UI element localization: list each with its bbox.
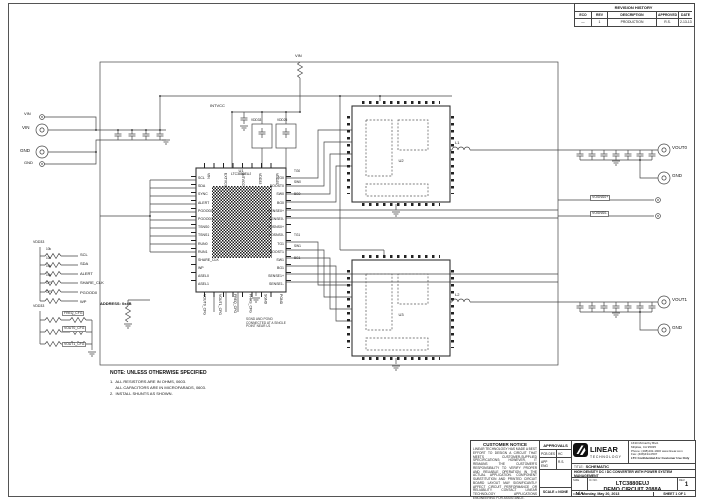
date-value: Monday, May 20, 2013 — [582, 492, 653, 496]
pullup-value-labels: 10k10k10k10kOPTOPT — [46, 248, 53, 294]
vout1-jack-label: VOUT1 — [672, 298, 687, 303]
pullup-rail-label: VDD33 — [33, 241, 44, 245]
u1-pin-label: WP — [198, 267, 228, 271]
u1-pin-label: VOSNS0- — [256, 234, 284, 238]
net-label: SDA — [80, 262, 104, 266]
resistor-value: 10k — [46, 265, 53, 268]
net-label: ALERT — [80, 272, 104, 276]
rev-cell: REV. 1 — [677, 478, 695, 490]
net-label: SHARE_CLK — [80, 281, 104, 285]
u1-pin-label: SHARE_CLK — [198, 259, 228, 263]
u1-pin-label: PHAS_CFG — [248, 294, 252, 316]
u1-pin-label: SENSE0+ — [256, 210, 284, 214]
u2-refdes: U2 — [352, 158, 450, 163]
logo-word-linear: LINEAR — [590, 445, 619, 454]
pullup-net-labels: SCLSDAALERTSHARE_CLKPGOOD0WP — [80, 253, 104, 304]
revision-history-table: REVISION HISTORY ECO REV DESCRIPTION APP… — [574, 3, 695, 27]
approvals-block: APPROVALS PCB DES HC APP ENG R.S. SCALE … — [540, 440, 572, 497]
u1-pin-label: SENSE0- — [256, 218, 284, 222]
config-net-labels: FREQ_CFGVOUT0_CFGVOUT1_CFG — [62, 311, 86, 347]
rev-col-description: DESCRIPTION — [607, 11, 656, 18]
schematic-graphics — [0, 0, 702, 500]
intvcc-net-label: INTVCC — [210, 104, 225, 108]
vdd33-net-label: VDD33 — [251, 119, 261, 123]
resistor-value: OPT — [46, 282, 53, 285]
u3-bottom-pads — [362, 357, 440, 360]
title-block: LINEAR TECHNOLOGY 1630 McCarthy Blvd. Mi… — [572, 440, 696, 497]
approvals-row-label: PCB DES — [540, 450, 557, 457]
vin-top-net-label: VIN — [295, 54, 302, 58]
resistor-value: 10k — [46, 248, 53, 251]
net-label: PGOOD0 — [80, 291, 104, 295]
u1-pin-label: ASEL1 — [198, 283, 228, 287]
intvcc-wiring — [232, 62, 303, 168]
u2-bottom-pads — [362, 203, 440, 206]
scale-label: SCALE = NONE — [540, 487, 571, 496]
input-jacks — [36, 115, 48, 167]
u3-top-pads — [362, 255, 440, 258]
u1-left-pins-ticks — [191, 176, 196, 288]
drawing-subtitle: HIGH DENSITY DC / DC CONVERTER WITH POWE… — [572, 469, 695, 477]
approvals-row-value: HC — [557, 450, 564, 457]
net-label: BG0 — [294, 193, 301, 196]
u2-right-pads — [451, 116, 454, 194]
u1-left-pin-labels: SCLSDASYNCALERTPGOOD0PGOOD1TSNS0TSNS1RUN… — [198, 177, 228, 287]
resistor-value: OPT — [46, 291, 53, 294]
u1-pin-label: PGND — [278, 294, 282, 316]
u1-pin-label: PGOOD0 — [198, 210, 228, 214]
u1-pin-label: BG1 — [256, 267, 284, 271]
schematic-frame — [100, 62, 558, 365]
u1-pin-label: BOOST1 — [256, 251, 284, 255]
resistor-value: 10k — [46, 257, 53, 260]
u1-bottom-pin-labels: VOUT0_CFGVOUT1_CFGFREQ_CFGPHAS_CFGSGNDPG… — [202, 294, 282, 316]
u1-pin-label: PGOOD1 — [198, 218, 228, 222]
ch0-net-labels: TG0SW0BG0 — [294, 170, 301, 196]
u1-pin-label: VDD25 — [275, 173, 279, 185]
vin-sense-terminal-label: VIN — [24, 112, 31, 116]
u1-pin-label: SENSE1+ — [256, 275, 284, 279]
config-rail-label: VDD33 — [33, 305, 44, 309]
net-label: VOUT1_CFG — [62, 342, 86, 347]
rev-row-eco: — — [575, 18, 591, 25]
linear-technology-logo: LINEAR TECHNOLOGY — [572, 441, 628, 463]
u1-top-pin-labels: VINEXTVCCINTVCCVDD33VDD25 — [206, 173, 278, 185]
logo-word-technology: TECHNOLOGY — [590, 455, 622, 459]
net-label: VOUT0_CFG — [62, 326, 86, 331]
rev-col-rev: REV — [591, 11, 607, 18]
note-line: 2. INSTALL SHUNTS AS SHOWN. — [110, 391, 280, 397]
revision-history-title: REVISION HISTORY — [575, 4, 692, 11]
rev-row-approved: R.S. — [656, 18, 678, 25]
net-label: SW0 — [294, 181, 301, 184]
company-address: 1630 McCarthy Blvd. Milpitas, CA 95035 P… — [628, 441, 695, 463]
u1-pin-label: TSNS0 — [198, 226, 228, 230]
u1-pin-label: VOSNS0+ — [256, 226, 284, 230]
u3-left-pads — [347, 270, 350, 348]
rev-value: 1 — [678, 482, 695, 488]
vin-jack-label: VIN — [22, 126, 30, 131]
rev-col-date: DATE — [678, 11, 692, 18]
u1-pin-label: SYNC — [198, 193, 228, 197]
l2-refdes: L2 — [455, 293, 459, 297]
output0-wiring — [450, 144, 670, 218]
vosns0n-net-label: VOSNS0- — [590, 211, 609, 217]
u1-pin-label: VDD33 — [257, 173, 261, 185]
u3-right-pads — [451, 270, 454, 348]
title-label: TITLE: — [572, 465, 586, 469]
u1-pin-label: EXTVCC — [223, 173, 227, 185]
l1-refdes: L1 — [455, 141, 459, 145]
size-label: SIZE — [572, 478, 587, 482]
u2-top-pads — [362, 101, 440, 104]
u1-pin-label: RUN1 — [198, 251, 228, 255]
resistor-value: 10k — [46, 274, 53, 277]
u1-pin-label: VOUT0_CFG — [202, 294, 206, 316]
rev-row-date: 2-13-13 — [678, 18, 692, 25]
u1-gnd-note: SGND AND PGND CONNECTED AT A SINGLE POIN… — [246, 318, 288, 329]
u2-left-pads — [347, 116, 350, 194]
u1-pin-label: INTVCC — [240, 173, 244, 185]
u1-pin-label: TSNS1 — [198, 234, 228, 238]
gnd-jack-label: GND — [20, 149, 30, 154]
notes-title: NOTE: UNLESS OTHERWISE SPECIFIED — [110, 370, 280, 376]
approvals-row-label: APP ENG — [540, 458, 557, 469]
u1-pin-label: SW1 — [256, 259, 284, 263]
u1-pin-label: BG0 — [256, 202, 284, 206]
u1-address-label: ADDRESS: 0x4B — [100, 302, 132, 306]
net-label: TG1 — [294, 234, 301, 237]
gnd0-jack-label: GND — [672, 174, 682, 179]
date-label: DATE: — [572, 492, 582, 496]
net-label: TG0 — [294, 170, 301, 173]
u1-right-pins-ticks — [286, 176, 291, 288]
address-line: LTC Confidential-For Customer Use Only — [631, 457, 693, 461]
rev-row-rev: 1 — [591, 18, 607, 25]
vosns0p-net-label: VOSNS0+ — [590, 195, 610, 201]
u1-pin-label: ASEL0 — [198, 275, 228, 279]
u1-pin-label: SENSE1- — [256, 283, 284, 287]
notes-block: NOTE: UNLESS OTHERWISE SPECIFIED 1. ALL … — [110, 370, 280, 397]
part-number-cell: IC NO. LTC3880EUJ DEMO CIRCUIT 2088A — [588, 478, 677, 490]
u1-pin-label: VOUT1_CFG — [217, 294, 221, 316]
u1-pin-label: FREQ_CFG — [233, 294, 237, 316]
vdd25-net-label: VDD25 — [277, 119, 287, 123]
approvals-title: APPROVALS — [540, 441, 571, 450]
gnd1-jack-label: GND — [672, 326, 682, 331]
approvals-row-value: R.S. — [557, 458, 565, 469]
u1-pin-label: TG1 — [256, 243, 284, 247]
net-label: SCL — [80, 253, 104, 257]
u3-refdes: U3 — [352, 312, 450, 317]
schematic-sheet: VIN VIN GND GND INTVCC VDD33 VDD25 VIN U… — [0, 0, 702, 500]
net-label: SW1 — [294, 245, 301, 248]
rev-col-approved: APPROVED — [656, 11, 678, 18]
sheet-number: SHEET 1 OF 1 — [653, 492, 695, 496]
gnd-terminal-label: GND — [24, 161, 33, 165]
u1-pin-label: VIN — [206, 173, 210, 185]
output1-wiring — [450, 296, 670, 336]
vout0-jack-label: VOUT0 — [672, 146, 687, 151]
u1-pin-label: SW0 — [256, 193, 284, 197]
u1-pin-label: ALERT — [198, 202, 228, 206]
u1-pin-label: SGND — [263, 294, 267, 316]
u1-left-wiring — [100, 180, 196, 252]
customer-notice-block: CUSTOMER NOTICE LINEAR TECHNOLOGY HAS MA… — [470, 440, 540, 497]
u1-pin-label: RUN0 — [198, 243, 228, 247]
net-label: WP — [80, 300, 104, 304]
u1-to-u3-wiring — [286, 242, 558, 321]
rev-row-description: PRODUCTION — [607, 18, 656, 25]
u1-right-pin-labels: TG0BOOST0SW0BG0SENSE0+SENSE0-VOSNS0+VOSN… — [256, 177, 284, 287]
u1-pin-label: BOOST0 — [256, 185, 284, 189]
customer-notice-body: LINEAR TECHNOLOGY HAS MADE A BEST EFFORT… — [471, 448, 539, 500]
net-label: BG1 — [294, 257, 301, 260]
ch1-net-labels: TG1SW1BG1 — [294, 234, 301, 260]
size-cell: SIZE N/A — [572, 478, 588, 490]
rev-col-eco: ECO — [575, 11, 591, 18]
net-label: FREQ_CFG — [62, 311, 84, 316]
title-strip: CUSTOMER NOTICE LINEAR TECHNOLOGY HAS MA… — [470, 440, 696, 497]
